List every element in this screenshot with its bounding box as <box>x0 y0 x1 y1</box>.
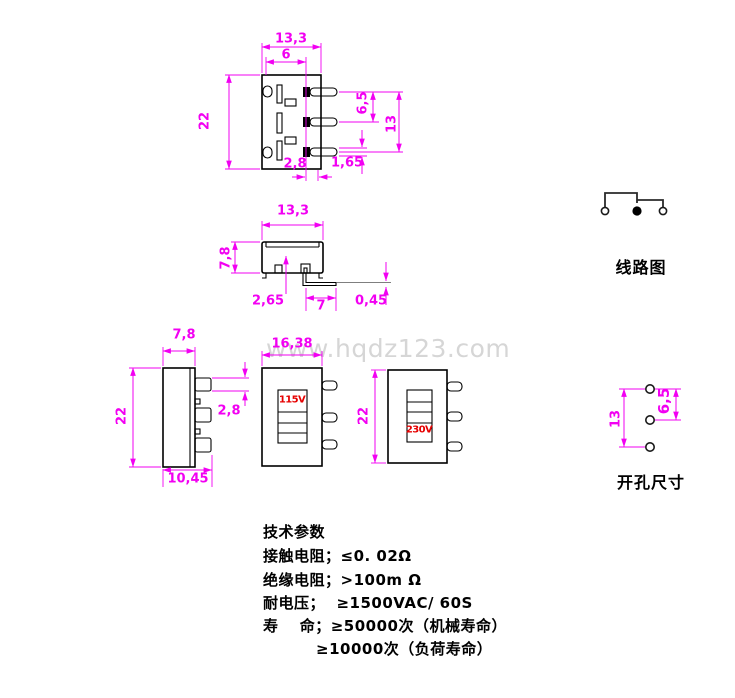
front-view <box>225 43 403 181</box>
front-view-230 <box>371 370 462 463</box>
front-view-115 <box>262 351 337 466</box>
dim-holes-pitch: 6,5 <box>655 388 673 415</box>
spec-line-withstand-voltage: 耐电压； ≥1500VAC/ 60S <box>263 592 473 613</box>
dim-left-depth: 10,45 <box>167 472 208 487</box>
voltage-label-115: 115V <box>279 395 305 406</box>
dim-left-width: 7,8 <box>172 328 195 343</box>
dim-holes-span: 13 <box>609 410 624 428</box>
specs-title: 技术参数 <box>263 521 325 542</box>
spec-line-life-load: ≥10000次（负荷寿命） <box>316 638 492 659</box>
dim-side-offset: 2,65 <box>252 294 284 309</box>
dim-side-width: 13,3 <box>277 204 309 219</box>
dim-front-height: 22 <box>198 112 213 130</box>
drawing-sheet: www.hqdz123.com <box>0 0 735 698</box>
spec-line-contact-resistance: 接触电阻；≤0. 02Ω <box>263 545 412 566</box>
circuit-diagram <box>601 193 666 216</box>
spec-line-life-mechanical: 寿 命；≥50000次（机械寿命） <box>263 615 507 636</box>
dim-front-width: 13,3 <box>275 32 307 47</box>
dim-front115-width: 16,38 <box>271 337 312 352</box>
dim-left-pin-thick: 2,8 <box>217 404 240 419</box>
dim-front-pin-span: 13 <box>385 115 400 133</box>
terminal-open-right <box>659 207 666 214</box>
dim-left-height: 22 <box>115 407 130 425</box>
dim-front-pin-thick: 1,65 <box>331 156 363 171</box>
dim-side-pin-thick: 0,45 <box>355 294 387 309</box>
dim-front-slot: 6 <box>281 48 290 63</box>
spec-line-insulation-resistance: 绝缘电阻；>100m Ω <box>263 569 421 590</box>
terminal-common <box>632 206 641 215</box>
dim-front230-height: 22 <box>357 407 372 425</box>
dim-front-pin-pitch: 6,5 <box>356 91 371 114</box>
dim-side-height: 7,8 <box>219 246 234 269</box>
terminal-open-left <box>601 207 608 214</box>
caption-circuit-diagram: 线路图 <box>615 254 666 278</box>
caption-hole-layout: 开孔尺寸 <box>617 469 685 493</box>
dim-front-pin-offset: 2,8 <box>283 157 306 172</box>
voltage-label-230: 230V <box>406 425 432 436</box>
dim-side-pin-len: 7 <box>316 299 325 314</box>
